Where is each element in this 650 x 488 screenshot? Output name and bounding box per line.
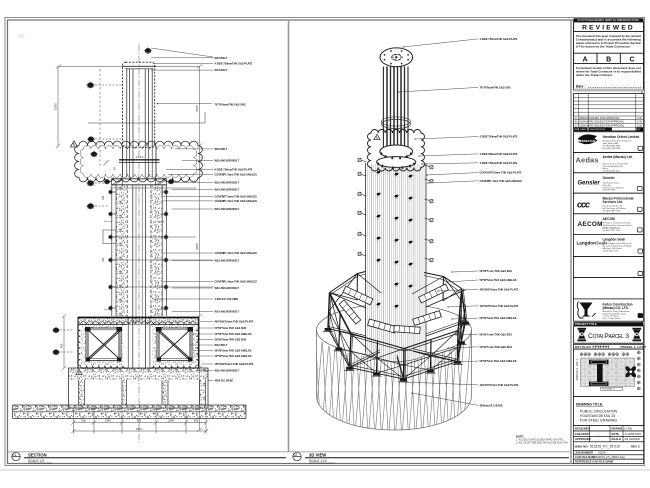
svg-text:W10 ANCHOR BOLT: W10 ANCHOR BOLT [215, 181, 240, 185]
svg-text:REV C: REV C [631, 444, 641, 448]
svg-text:PARCEL 1, LOT 1: PARCEL 1, LOT 1 [575, 359, 579, 380]
svg-text:ccc: ccc [577, 200, 590, 210]
svg-text:1 PL 2: 1 PL 2 [136, 155, 144, 159]
svg-text:RE-ISSUED FOR APPROVAL: RE-ISSUED FOR APPROVAL [590, 123, 625, 127]
svg-text:31124: 31124 [598, 451, 606, 455]
svg-text:Tel: (853) 2837 5583: Tel: (853) 2837 5583 [603, 211, 620, 213]
svg-text:4 SIDE 750mmTHK G&S PLATE: 4 SIDE 750mmTHK G&S PLATE [480, 135, 518, 139]
svg-text:Tel: (852) 2317 7000: Tel: (852) 2317 7000 [603, 230, 620, 232]
svg-text:W10 ANCHOR BOLT: W10 ANCHOR BOLT [215, 159, 240, 163]
svg-text:50*50*5mm THK G&S ANGLES: 50*50*5mm THK G&S ANGLES [480, 359, 517, 363]
svg-text:DESIGNED: DESIGNED [575, 426, 590, 430]
svg-text:50*50*5mm THK G&S ANGLES: 50*50*5mm THK G&S ANGLES [480, 278, 517, 282]
svg-text:RE-ISSUED FOR APPROVAL: RE-ISSUED FOR APPROVAL [590, 120, 625, 124]
svg-text:850: 850 [137, 418, 142, 422]
svg-text:W10 ANCHOR BOLT: W10 ANCHOR BOLT [215, 188, 240, 192]
svg-text:A: A [582, 56, 587, 63]
svg-text:4200 R.C BASE: 4200 R.C BASE [215, 379, 234, 383]
svg-text:Fixing Typ: Fixing Typ [157, 221, 165, 223]
svg-text:COTAI PARCEL 3: COTAI PARCEL 3 [588, 333, 629, 340]
svg-text:DRAWING TITLE:: DRAWING TITLE: [576, 403, 603, 407]
svg-text:-: - [598, 437, 599, 441]
svg-text:4 SIDE 750mmTHK G&S PLATE: 4 SIDE 750mmTHK G&S PLATE [215, 62, 253, 66]
svg-text:C: C [629, 56, 634, 63]
svg-text:DWG NO: DWG NO [575, 444, 588, 448]
svg-text:APPROVED: APPROVED [575, 437, 591, 441]
svg-text:Fixing Typ: Fixing Typ [104, 221, 112, 223]
svg-text:75*75*6mmTHK G&S SHS: 75*75*6mmTHK G&S SHS [215, 103, 246, 107]
svg-text:08/04/10: 08/04/10 [579, 116, 590, 120]
svg-text:2. ALL FILLET WELDED SHOULD BE: 2. ALL FILLET WELDED SHOULD BE 6mm THK. [516, 442, 569, 445]
svg-text:01: 01 [13, 453, 17, 457]
svg-text:COUPLER*10mm THK G&S PLATE: COUPLER*10mm THK G&S PLATE [480, 171, 522, 175]
svg-text:1500: 1500 [54, 103, 58, 110]
svg-text:W10 BOLT: W10 BOLT [215, 56, 228, 60]
svg-text:W10 ANCHOR BOLT: W10 ANCHOR BOLT [215, 259, 240, 263]
svg-text:COVERPL 5mm THK G&S ANGLES: COVERPL 5mm THK G&S ANGLES [215, 199, 258, 203]
svg-text:Services Ltd.: Services Ltd. [603, 200, 624, 204]
svg-text:PUBLIC CIRCULATION: PUBLIC CIRCULATION [580, 409, 618, 413]
svg-text:4 SIDE 750mmTHK G&S PLATE: 4 SIDE 750mmTHK G&S PLATE [480, 161, 518, 165]
svg-text:700: 700 [102, 195, 105, 200]
svg-text:LYD: LYD [637, 123, 642, 127]
svg-text:Fixing Typ: Fixing Typ [157, 309, 165, 311]
svg-text:Unit J, 7 andar, Macau: Unit J, 7 andar, Macau [603, 317, 621, 320]
svg-text:4 900 R.C COLUMN: 4 900 R.C COLUMN [215, 297, 239, 301]
svg-text:COVERPL 5mm THK G&S ANGLES: COVERPL 5mm THK G&S ANGLES [480, 179, 523, 183]
svg-text:14 APR 2010: 14 APR 2010 [625, 432, 642, 436]
svg-text:Aedas (Macau) Ltd.: Aedas (Macau) Ltd. [603, 155, 633, 159]
svg-text:KEY PLAN: KEY PLAN [575, 345, 591, 349]
svg-text:JOB NUMBER: JOB NUMBER [575, 451, 593, 455]
svg-text:COVERPL 5mm THK G&S ANGLES: COVERPL 5mm THK G&S ANGLES [215, 280, 258, 284]
svg-text:Date :: Date : [576, 85, 586, 89]
svg-text:(Macau) CO. LTD.: (Macau) CO. LTD. [603, 306, 629, 310]
svg-text:CHECKED: CHECKED [575, 432, 589, 436]
svg-text:1864: 1864 [105, 418, 111, 422]
svg-text:50*50*5 mm THK G&S SHS: 50*50*5 mm THK G&S SHS [480, 269, 513, 273]
svg-text:COVERPL 5mm THK G&S ANGLES: COVERPL 5mm THK G&S ANGLES [215, 251, 258, 255]
svg-text:02: 02 [294, 453, 298, 457]
svg-text:5115JS_FC_25.010: 5115JS_FC_25.010 [590, 444, 620, 448]
svg-text:50*50*5 mm THK G&S SHS: 50*50*5 mm THK G&S SHS [480, 345, 513, 349]
svg-text:SCALE 1:10: SCALE 1:10 [309, 459, 327, 463]
svg-text:5115JS_FC_25010.dwg: 5115JS_FC_25010.dwg [596, 455, 625, 459]
svg-text:LYND: LYND [625, 426, 632, 430]
svg-text:50*50*5mm THK G&S ANGLES: 50*50*5mm THK G&S ANGLES [215, 349, 252, 353]
svg-text:FOR STEEL DRAWING: FOR STEEL DRAWING [580, 419, 617, 423]
svg-text:120*120*10mm THK G&S PLATE: 120*120*10mm THK G&S PLATE [480, 304, 519, 308]
svg-text:50*50*5mm THK G&S ANGLES: 50*50*5mm THK G&S ANGLES [215, 332, 252, 336]
svg-text:600: 600 [194, 418, 199, 422]
svg-text:T (853) 2833 1710: T (853) 2833 1710 [603, 250, 619, 252]
svg-text:Langdon Seah: Langdon Seah [603, 238, 626, 242]
svg-text:FOUNTAIN 25: FOUNTAIN 25 [602, 388, 616, 391]
svg-text:150*100*10mm THK G&S PLATE: 150*100*10mm THK G&S PLATE [215, 362, 254, 366]
svg-text:Fax: (853) 2882 8889: Fax: (853) 2882 8889 [603, 148, 621, 150]
svg-text:W10 BOLT: W10 BOLT [215, 68, 228, 72]
svg-text:A: A [575, 116, 577, 120]
svg-text:W10 ANCHOR BOLT: W10 ANCHOR BOLT [215, 207, 240, 211]
svg-text:W10 ANCHOR BOLT: W10 ANCHOR BOLT [215, 286, 240, 290]
svg-text:4 SIDE 950mmTHK G&S PLATE: 4 SIDE 950mmTHK G&S PLATE [480, 152, 518, 156]
svg-text:DRAWN: DRAWN [612, 426, 623, 430]
svg-text:LYD: LYD [637, 120, 642, 124]
svg-text:Tel: (853) 2833 1113: Tel: (853) 2833 1113 [603, 171, 620, 173]
svg-text:VENETIAN: VENETIAN [580, 139, 596, 143]
svg-text:COVERPL 5mm THK G&S ANGLES: COVERPL 5mm THK G&S ANGLES [215, 173, 258, 177]
svg-text:50*50*5mm THK G&S ANGLES: 50*50*5mm THK G&S ANGLES [480, 316, 517, 320]
svg-text:COVERPT 5mm THK G&S ANGLES: COVERPT 5mm THK G&S ANGLES [215, 195, 258, 199]
svg-text:4 SIDE 750mmTHK G&S PLATE: 4 SIDE 750mmTHK G&S PLATE [480, 37, 518, 41]
svg-text:SECTION: SECTION [28, 452, 47, 457]
svg-text:600: 600 [82, 418, 87, 422]
svg-text:W10 ANCHOR BOLT: W10 ANCHOR BOLT [215, 369, 240, 373]
svg-text:AS SHOWN: AS SHOWN [625, 437, 640, 441]
svg-text:t 415 433 3700: t 415 433 3700 [603, 189, 616, 192]
svg-text:50*50*5mm THK G&S ANGLES: 50*50*5mm THK G&S ANGLES [215, 354, 252, 358]
svg-text:AECOM: AECOM [603, 217, 616, 221]
svg-text:W10 ANCHOR BOLT: W10 ANCHOR BOLT [215, 310, 240, 314]
svg-text:B: B [606, 56, 611, 63]
svg-text:Gensler: Gensler [603, 176, 616, 180]
svg-text:Aedas: Aedas [576, 155, 599, 164]
svg-text:-: - [598, 432, 599, 436]
svg-text:15/04/10: 15/04/10 [579, 120, 590, 124]
svg-text:B: B [575, 120, 577, 124]
svg-text:under the Trade Contract.: under the Trade Contract. [576, 73, 613, 77]
svg-text:7050: 7050 [195, 105, 199, 112]
svg-text:AECOM: AECOM [578, 221, 603, 228]
svg-text:Gensler: Gensler [578, 181, 601, 187]
svg-text:REV: REV [575, 129, 580, 131]
svg-text:SCALE: SCALE [612, 437, 622, 441]
svg-text:W10 BOLT: W10 BOLT [215, 343, 228, 347]
svg-text:REFERENCE CAD FILE NAME: REFERENCE CAD FILE NAME [575, 459, 614, 463]
svg-text:4 SIDE 750mmTHK G&S PLATE: 4 SIDE 750mmTHK G&S PLATE [215, 167, 253, 171]
svg-text:50*50*5mm THK G&S SHS: 50*50*5mm THK G&S SHS [215, 326, 247, 330]
svg-text:ISSUED FOR APPROVAL: ISSUED FOR APPROVAL [590, 116, 621, 120]
svg-text:450*200*10mm THK G&S PLATE: 450*200*10mm THK G&S PLATE [215, 320, 254, 324]
svg-text:450*200*10mm THK G&S PLATE: 450*200*10mm THK G&S PLATE [480, 287, 519, 291]
svg-text:FOUNTAIN DETAIL 25: FOUNTAIN DETAIL 25 [580, 414, 615, 418]
svg-text:75*75*6mmTHK G&S SHS: 75*75*6mmTHK G&S SHS [480, 85, 511, 89]
svg-text:LYD: LYD [637, 116, 642, 120]
svg-text:2600: 2600 [195, 243, 199, 250]
svg-text:700: 700 [102, 257, 105, 262]
svg-text:3D VIEW: 3D VIEW [309, 452, 326, 457]
svg-text:SCALE 1:5: SCALE 1:5 [28, 459, 44, 463]
svg-text:W10 BOLT: W10 BOLT [215, 147, 228, 151]
svg-text:22/04/10: 22/04/10 [579, 123, 590, 127]
svg-text:5.4 for action by the Trade Co: 5.4 for action by the Trade Contractor. [576, 45, 631, 49]
svg-text:50*50*5mm THK G&S SHS: 50*50*5mm THK G&S SHS [215, 338, 247, 342]
svg-text:REVIEWED: REVIEWED [582, 24, 635, 31]
svg-text:50*50*5 mm THK G&S SHS: 50*50*5 mm THK G&S SHS [480, 333, 513, 337]
svg-text:DATE: DATE [580, 128, 586, 131]
svg-text:CAD FILE NAME: CAD FILE NAME [575, 455, 596, 459]
svg-text:DESCRIPTION: DESCRIPTION [590, 129, 605, 131]
svg-text:C: C [575, 123, 577, 127]
svg-text:1864: 1864 [168, 418, 174, 422]
svg-text:4200mm R.C BASE: 4200mm R.C BASE [480, 403, 503, 407]
svg-text:2864: 2864 [136, 427, 142, 431]
svg-text:Venetian Orient Limited: Venetian Orient Limited [603, 135, 640, 139]
svg-text:PARCEL 1, LOT 2: PARCEL 1, LOT 2 [621, 345, 647, 349]
svg-text:120*120*10mm THK G&S PLATE: 120*120*10mm THK G&S PLATE [480, 383, 519, 387]
svg-text:DATE: DATE [612, 432, 620, 436]
svg-text:900: 900 [60, 343, 64, 348]
